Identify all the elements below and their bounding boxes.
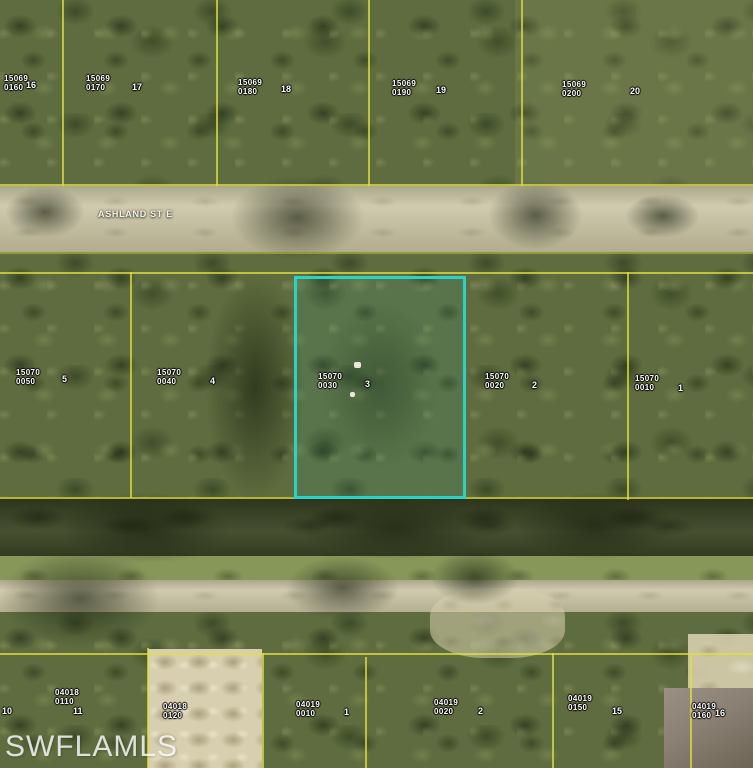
- parcel-label: 15069 0170: [86, 74, 110, 92]
- parcel-block: 15069: [4, 74, 28, 83]
- driveway: [688, 634, 753, 692]
- parcel-lot-code: 0010: [635, 383, 659, 392]
- canal-tree-shadow: [515, 492, 675, 560]
- parcel-block: 15069: [238, 78, 262, 87]
- parcel-label: 15069 0180: [238, 78, 262, 96]
- parcel-lot-code: 0160: [692, 711, 716, 720]
- lot-number: 16: [715, 708, 725, 718]
- parcel-block: 04018: [163, 702, 187, 711]
- parcel-lot-code: 0120: [163, 711, 187, 720]
- lot-number: 2: [532, 380, 537, 390]
- street-name-label: ASHLAND ST E: [98, 209, 173, 219]
- parcel-lot-code: 0040: [157, 377, 181, 386]
- lot-number: 18: [281, 84, 291, 94]
- parcel-lot-code: 0030: [318, 381, 342, 390]
- parcel-line: [62, 0, 64, 186]
- parcel-label: 04019 0010: [296, 700, 320, 718]
- parcel-line: [627, 272, 629, 500]
- parcel-block: 15070: [157, 368, 181, 377]
- parcel-label: 04019 0160: [692, 702, 716, 720]
- parcel-line: [521, 0, 523, 186]
- parcel-line: [368, 0, 370, 186]
- parcel-lot-code: 0150: [568, 703, 592, 712]
- parcel-label: 04019 0020: [434, 698, 458, 716]
- parcel-line: [0, 653, 753, 655]
- parcel-block: 15069: [562, 80, 586, 89]
- parcel-lot-code: 0020: [485, 381, 509, 390]
- lot-number: 16: [26, 80, 36, 90]
- parcel-block: 04019: [296, 700, 320, 709]
- tree-cluster-shadow: [205, 272, 305, 502]
- parcel-line: [365, 657, 367, 768]
- parcel-lot-code: 0020: [434, 707, 458, 716]
- parcel-label-highlighted: 15070 0030: [318, 372, 342, 390]
- parcel-label: 04018 0110: [55, 688, 79, 706]
- lot-number: 1: [344, 707, 349, 717]
- tree-shadow: [285, 556, 400, 620]
- parcel-label: 15069 0200: [562, 80, 586, 98]
- parcel-block: 15070: [16, 368, 40, 377]
- parcel-lot-code: 0170: [86, 83, 110, 92]
- lot-number: 20: [630, 86, 640, 96]
- parcel-lot-code: 0110: [55, 697, 79, 706]
- parcel-block: 04018: [55, 688, 79, 697]
- lot-number: 11: [73, 706, 83, 716]
- parcel-line: [0, 272, 753, 274]
- lot-number: 5: [62, 374, 67, 384]
- tree-shadow: [430, 550, 520, 605]
- lot-number: 1: [678, 383, 683, 393]
- house-roof: [664, 688, 753, 768]
- parcel-block: 15069: [392, 79, 416, 88]
- lot-number: 3: [365, 379, 370, 389]
- parcel-label: 15069 0160: [4, 74, 28, 92]
- tree-shadow: [625, 194, 700, 238]
- parcel-block: 15070: [635, 374, 659, 383]
- lot-number: 19: [436, 85, 446, 95]
- parcel-block: 15069: [86, 74, 110, 83]
- parcel-label: 15070 0010: [635, 374, 659, 392]
- parcel-label: 04018 0120: [163, 702, 187, 720]
- parcel-lot-code: 0050: [16, 377, 40, 386]
- parcel-line: [216, 0, 218, 186]
- parcel-label: 15070 0050: [16, 368, 40, 386]
- parcel-block: 04019: [568, 694, 592, 703]
- parcel-lot-code: 0190: [392, 88, 416, 97]
- tree-shadow: [0, 548, 160, 648]
- parcel-block: 04019: [434, 698, 458, 707]
- parcel-lot-code: 0180: [238, 87, 262, 96]
- parcel-lot-code: 0200: [562, 89, 586, 98]
- lot-number: 17: [132, 82, 142, 92]
- parcel-line: [262, 653, 264, 768]
- aerial-parcel-map: 15069 0160 16 15069 0170 17 15069 0180 1…: [0, 0, 753, 768]
- parcel-line: [552, 653, 554, 768]
- parcel-line: [0, 252, 753, 254]
- lot-number: 4: [210, 376, 215, 386]
- lot-number: 10: [2, 706, 12, 716]
- lot-number: 15: [612, 706, 622, 716]
- tree-shadow: [230, 175, 365, 260]
- parcel-block: 15070: [318, 372, 342, 381]
- parcel-label: 15070 0020: [485, 372, 509, 390]
- tree-shadow: [488, 180, 583, 250]
- mls-watermark: SWFLAMLS: [5, 730, 178, 764]
- parcel-line: [130, 272, 132, 498]
- parcel-lot-code: 0160: [4, 83, 28, 92]
- parcel-lot-code: 0010: [296, 709, 320, 718]
- parcel-label: 15070 0040: [157, 368, 181, 386]
- structure-speck: [354, 362, 361, 368]
- tree-shadow: [5, 186, 85, 238]
- lot-number: 2: [478, 706, 483, 716]
- parcel-block: 15070: [485, 372, 509, 381]
- parcel-label: 04019 0150: [568, 694, 592, 712]
- parcel-label: 15069 0190: [392, 79, 416, 97]
- parcel-block: 04019: [692, 702, 716, 711]
- structure-speck: [350, 392, 355, 397]
- parcel-line: [0, 184, 753, 186]
